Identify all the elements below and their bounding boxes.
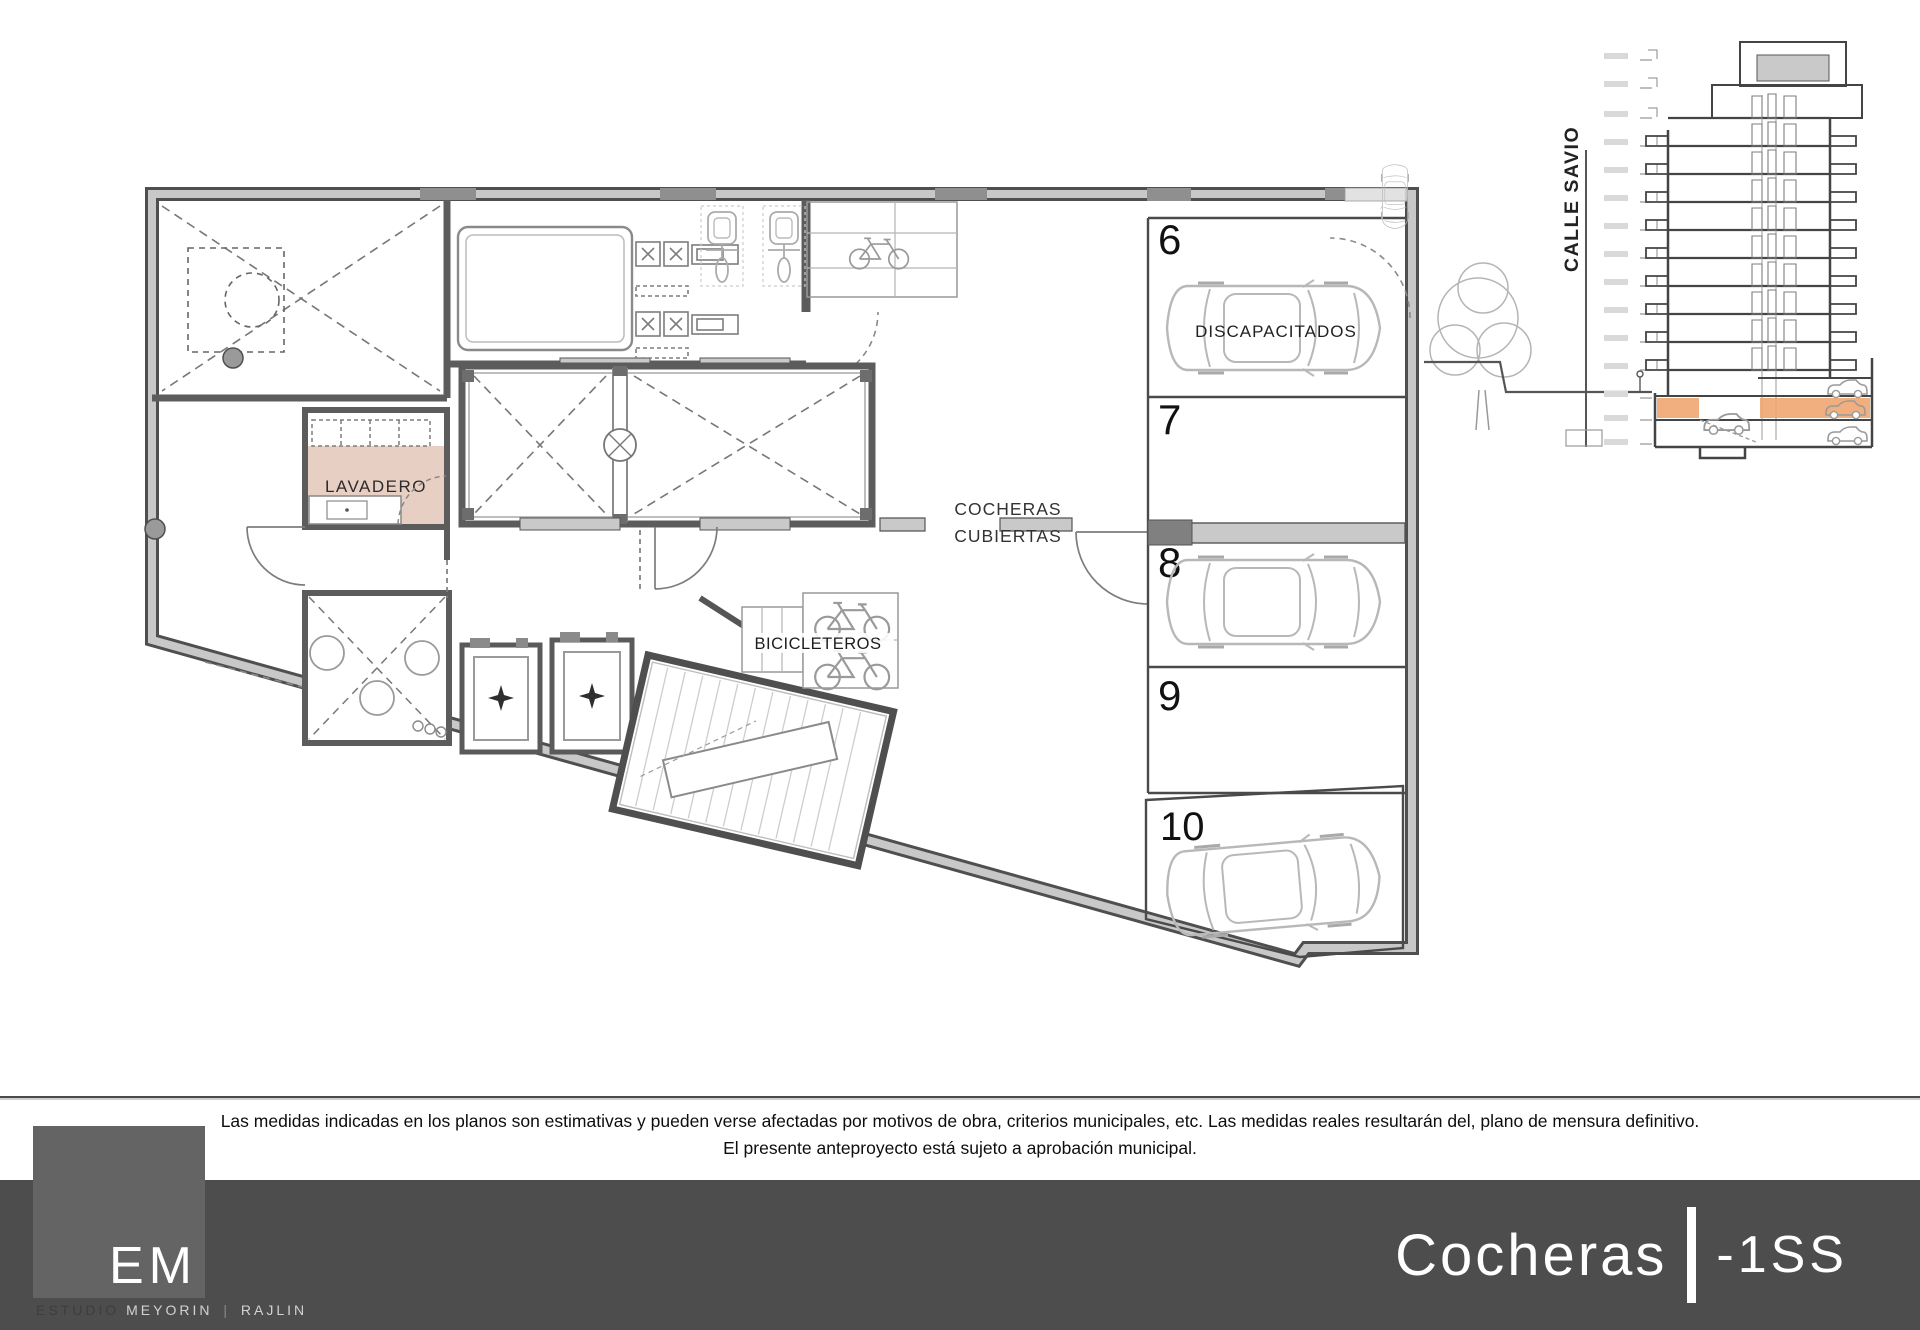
discapacitados-label: DISCAPACITADOS [1195,322,1357,341]
floor-plan: LAVADERO [145,165,1412,960]
tree-icon [1430,263,1531,430]
garage-entry-opening [1345,188,1407,201]
person-icon [1637,371,1643,392]
sheet-level-text: -1SS [1716,1225,1848,1285]
sheet-title-text: Cocheras [1395,1222,1667,1289]
svg-text:COCHERAS: COCHERAS [954,499,1061,519]
room-lavadero: LAVADERO [305,410,447,527]
disclaimer: Las medidas indicadas en los planos son … [0,1108,1920,1162]
planter [1566,430,1602,446]
car-side-icon [1704,414,1749,434]
street-label: CALLE SAVIO [1561,126,1583,272]
disclaimer-line-1: Las medidas indicadas en los planos son … [0,1108,1920,1135]
column-icon [223,348,243,368]
parking-space-7: 7 [1158,396,1181,443]
studio-word: ESTUDIO [36,1302,119,1318]
floor-plan-drawing: LAVADERO [0,0,1920,1095]
bicicleteros-label: BICICLETEROS [754,635,881,653]
svg-text:CUBIERTAS: CUBIERTAS [954,526,1062,546]
sheet-title: Cocheras -1SS [1395,1180,1848,1330]
space-number: 10 [1160,805,1205,849]
logo-studio-name: ESTUDIO MEYORIN | RAJLIN [36,1302,307,1318]
level-highlight [1657,398,1699,418]
studio-word: RAJLIN [241,1302,307,1318]
logo-monogram: EM [109,1236,197,1296]
basement [1655,358,1872,458]
tower [1646,42,1862,440]
column-icon [145,519,165,539]
title-divider [1687,1207,1696,1303]
studio-separator: | [219,1302,234,1318]
building-section: CALLE SAVIO [1424,42,1872,458]
car-side-icon [1828,427,1867,445]
room-pumps [305,593,449,743]
lavadero-label: LAVADERO [325,477,427,496]
parking-space-9: 9 [1158,672,1181,719]
space-number: 9 [1158,672,1181,719]
car-side-icon [1828,380,1867,398]
core-doors [1752,94,1796,370]
space-number: 7 [1158,396,1181,443]
laundry-counter [309,496,401,524]
page: LAVADERO [0,0,1920,1330]
studio-word: MEYORIN [126,1302,212,1318]
logo: EM [33,1126,205,1298]
room-car-lift [462,366,872,530]
footer-rule [0,1096,1920,1098]
floor-slabs [1668,118,1830,370]
space-number: 6 [1158,216,1181,263]
roof-tank [1757,55,1829,81]
balconies-right [1830,136,1856,370]
disclaimer-line-2: El presente anteproyecto está sujeto a a… [0,1135,1920,1162]
